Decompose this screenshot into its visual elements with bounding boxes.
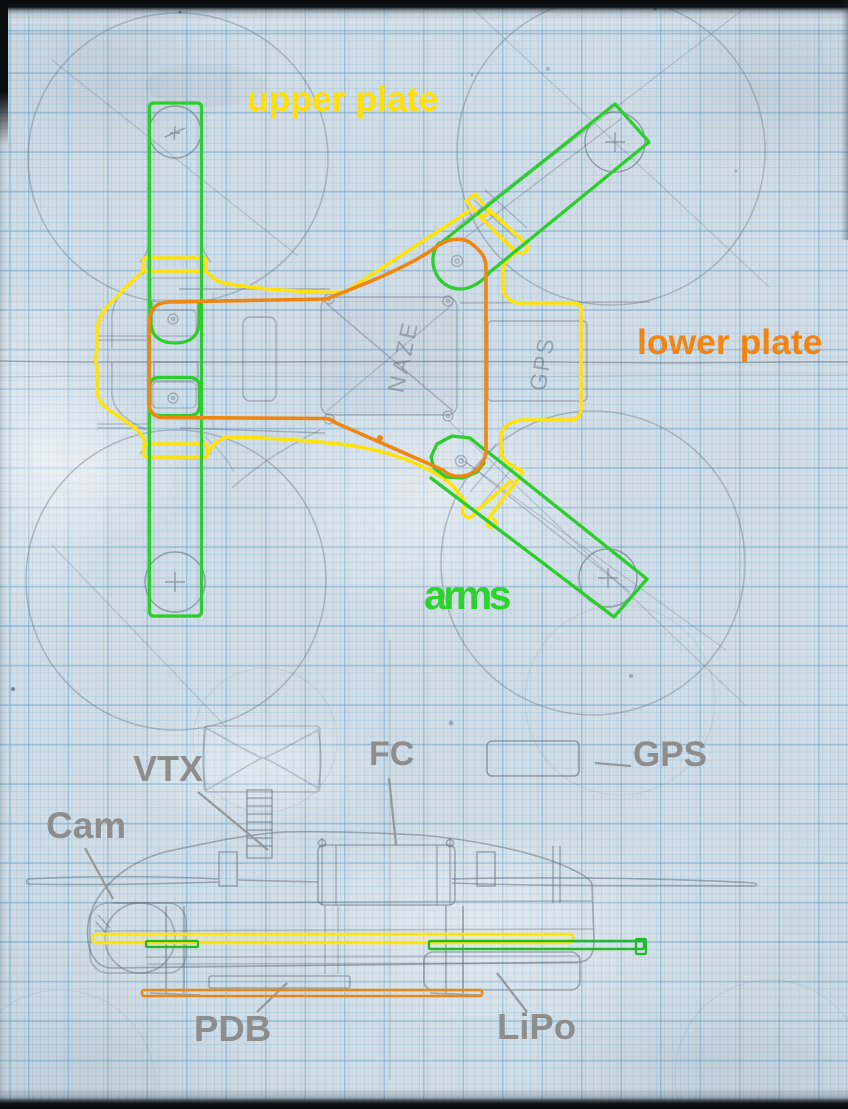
svg-text:GPS: GPS bbox=[524, 335, 559, 393]
